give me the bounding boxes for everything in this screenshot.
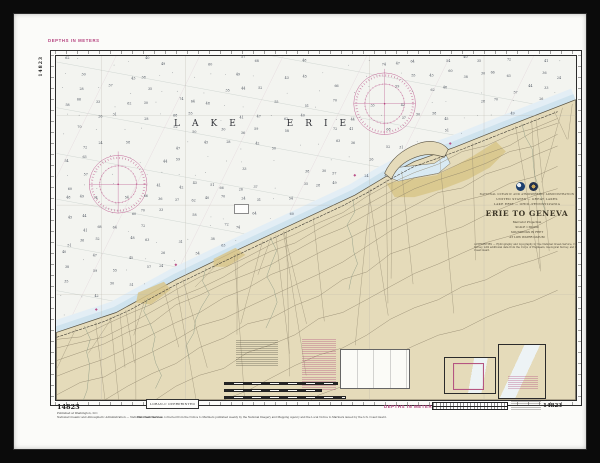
scale-bar bbox=[224, 382, 338, 386]
svg-text:26: 26 bbox=[539, 97, 543, 101]
soundings-line: SOUNDINGS IN FEET bbox=[474, 230, 577, 234]
svg-text:60: 60 bbox=[208, 62, 212, 66]
svg-text:49: 49 bbox=[332, 181, 336, 185]
svg-text:41: 41 bbox=[83, 228, 87, 232]
svg-text:35: 35 bbox=[64, 279, 68, 283]
svg-text:36: 36 bbox=[80, 238, 84, 242]
svg-text:58: 58 bbox=[126, 141, 130, 145]
svg-text:50: 50 bbox=[416, 113, 420, 117]
agency-logos bbox=[474, 182, 577, 191]
svg-text:59: 59 bbox=[93, 269, 97, 273]
meters-feet-conversion-scale bbox=[432, 402, 508, 410]
svg-text:38: 38 bbox=[464, 75, 468, 79]
border-ticks-right bbox=[578, 55, 581, 401]
svg-text:63: 63 bbox=[145, 238, 149, 242]
svg-text:49: 49 bbox=[236, 73, 240, 77]
svg-text:62: 62 bbox=[431, 88, 435, 92]
svg-text:58: 58 bbox=[432, 111, 436, 115]
chart-number-bottom-left: 14823 bbox=[57, 403, 80, 411]
svg-text:50: 50 bbox=[272, 146, 276, 150]
svg-text:38: 38 bbox=[211, 237, 215, 241]
svg-text:57: 57 bbox=[241, 56, 245, 59]
svg-text:44: 44 bbox=[82, 214, 86, 218]
svg-text:45: 45 bbox=[444, 117, 448, 121]
svg-text:30: 30 bbox=[82, 72, 86, 76]
svg-text:66: 66 bbox=[491, 71, 495, 75]
svg-text:43: 43 bbox=[285, 76, 289, 80]
authorities-note: AUTHORITIES — Hydrography and topography… bbox=[474, 243, 577, 252]
svg-text:33: 33 bbox=[242, 167, 246, 171]
svg-text:24: 24 bbox=[98, 141, 102, 145]
svg-text:44: 44 bbox=[163, 160, 167, 164]
svg-text:51: 51 bbox=[210, 183, 214, 187]
svg-text:33: 33 bbox=[544, 86, 548, 90]
svg-text:68: 68 bbox=[255, 59, 259, 63]
svg-text:57: 57 bbox=[332, 171, 336, 175]
svg-text:26: 26 bbox=[161, 251, 165, 255]
noaa-logo-icon bbox=[516, 182, 525, 191]
svg-text:37: 37 bbox=[402, 116, 406, 120]
svg-text:30: 30 bbox=[322, 169, 326, 173]
svg-text:30: 30 bbox=[481, 71, 485, 75]
svg-text:72: 72 bbox=[507, 57, 511, 61]
svg-text:72: 72 bbox=[141, 224, 145, 228]
svg-text:68: 68 bbox=[173, 114, 177, 118]
svg-text:44: 44 bbox=[241, 87, 245, 91]
inset-note-block bbox=[508, 376, 538, 389]
svg-text:35: 35 bbox=[304, 182, 308, 186]
svg-text:70: 70 bbox=[494, 98, 498, 102]
svg-text:48: 48 bbox=[130, 236, 134, 240]
svg-text:47: 47 bbox=[93, 254, 97, 258]
svg-text:26: 26 bbox=[239, 188, 243, 192]
chart-body: 6258546048455140383530286670726357494441… bbox=[55, 55, 577, 401]
svg-text:40: 40 bbox=[463, 56, 467, 59]
svg-text:63: 63 bbox=[82, 155, 86, 159]
svg-text:42: 42 bbox=[401, 103, 405, 107]
svg-text:52: 52 bbox=[258, 86, 262, 90]
svg-text:40: 40 bbox=[205, 196, 209, 200]
svg-text:28: 28 bbox=[79, 87, 83, 91]
svg-text:24: 24 bbox=[159, 264, 163, 268]
svg-text:43: 43 bbox=[131, 76, 135, 80]
svg-text:54: 54 bbox=[196, 251, 200, 255]
conversion-scale-caption bbox=[511, 401, 541, 410]
svg-text:74: 74 bbox=[94, 196, 98, 200]
svg-text:63: 63 bbox=[507, 74, 511, 78]
svg-text:48: 48 bbox=[206, 102, 210, 106]
svg-text:54: 54 bbox=[125, 196, 129, 200]
svg-text:36: 36 bbox=[542, 71, 546, 75]
svg-text:66: 66 bbox=[144, 194, 148, 198]
svg-text:64: 64 bbox=[113, 225, 117, 229]
svg-text:68: 68 bbox=[386, 128, 390, 132]
title-block: NATIONAL OCEANIC AND ATMOSPHERIC ADMINIS… bbox=[474, 182, 577, 252]
svg-text:70: 70 bbox=[141, 209, 145, 213]
svg-text:54: 54 bbox=[446, 59, 450, 63]
svg-text:58: 58 bbox=[285, 129, 289, 133]
svg-text:58: 58 bbox=[192, 213, 196, 217]
svg-text:36: 36 bbox=[158, 197, 162, 201]
svg-text:45: 45 bbox=[68, 216, 72, 220]
svg-text:50: 50 bbox=[192, 130, 196, 134]
svg-text:51: 51 bbox=[129, 283, 133, 287]
svg-text:40: 40 bbox=[301, 114, 305, 118]
svg-text:55: 55 bbox=[274, 100, 278, 104]
border-ticks-top bbox=[55, 51, 577, 54]
lake-name-label: LAKE ERIE bbox=[174, 119, 358, 129]
svg-text:57: 57 bbox=[513, 91, 517, 95]
svg-text:42: 42 bbox=[179, 186, 183, 190]
svg-text:49: 49 bbox=[80, 194, 84, 198]
framed-chart-print: DEPTHS IN METERS 14823 6258 bbox=[0, 0, 600, 463]
svg-text:40: 40 bbox=[62, 250, 66, 254]
svg-text:36: 36 bbox=[351, 141, 355, 145]
svg-text:70: 70 bbox=[221, 194, 225, 198]
svg-text:55: 55 bbox=[188, 111, 192, 115]
svg-text:26: 26 bbox=[369, 157, 373, 161]
svg-text:55: 55 bbox=[411, 73, 415, 77]
correction-note: This chart has been corrected from the N… bbox=[137, 416, 463, 419]
chart-title: ERIE TO GENEVA bbox=[474, 209, 577, 218]
projection-line: Mercator Projection bbox=[474, 220, 577, 224]
svg-text:60: 60 bbox=[448, 69, 452, 73]
svg-text:37: 37 bbox=[109, 84, 113, 88]
svg-text:74: 74 bbox=[236, 226, 240, 230]
svg-text:74: 74 bbox=[382, 63, 386, 67]
svg-text:31: 31 bbox=[113, 113, 117, 117]
svg-text:43: 43 bbox=[193, 181, 197, 185]
svg-text:36: 36 bbox=[241, 131, 245, 135]
loran-overprint-box: LORAN-C OVERPRINTED bbox=[146, 399, 199, 409]
svg-text:60: 60 bbox=[68, 187, 72, 191]
left-margin-chart-number: 14823 bbox=[39, 56, 44, 77]
svg-text:30: 30 bbox=[144, 101, 148, 105]
svg-text:60: 60 bbox=[290, 212, 294, 216]
svg-text:57: 57 bbox=[147, 265, 151, 269]
svg-text:42: 42 bbox=[94, 294, 98, 298]
svg-text:28: 28 bbox=[144, 117, 148, 121]
svg-text:51: 51 bbox=[445, 128, 449, 132]
svg-text:74: 74 bbox=[179, 97, 183, 101]
svg-text:48: 48 bbox=[66, 195, 70, 199]
svg-text:31: 31 bbox=[179, 240, 183, 244]
svg-text:47: 47 bbox=[176, 146, 180, 150]
svg-text:35: 35 bbox=[148, 87, 152, 91]
svg-text:24: 24 bbox=[364, 174, 368, 178]
svg-text:41: 41 bbox=[544, 59, 548, 63]
svg-text:66: 66 bbox=[220, 186, 224, 190]
caution-note-block bbox=[236, 340, 278, 366]
inset-magenta-limit-box bbox=[454, 364, 483, 389]
svg-text:72: 72 bbox=[83, 145, 87, 149]
svg-text:33: 33 bbox=[159, 208, 163, 212]
svg-text:40: 40 bbox=[145, 56, 149, 60]
svg-text:62: 62 bbox=[65, 56, 69, 60]
svg-text:72: 72 bbox=[225, 222, 229, 226]
svg-text:62: 62 bbox=[127, 102, 131, 106]
svg-text:37: 37 bbox=[175, 198, 179, 202]
svg-text:26: 26 bbox=[98, 115, 102, 119]
scale-bar bbox=[224, 396, 346, 400]
svg-text:51: 51 bbox=[305, 104, 309, 108]
svg-text:58: 58 bbox=[65, 103, 69, 107]
svg-text:28: 28 bbox=[481, 100, 485, 104]
svg-text:33: 33 bbox=[96, 100, 100, 104]
svg-text:45: 45 bbox=[204, 141, 208, 145]
svg-text:59: 59 bbox=[176, 157, 180, 161]
svg-text:54: 54 bbox=[64, 159, 68, 163]
svg-text:43: 43 bbox=[429, 73, 433, 77]
harbor-inset-left bbox=[444, 357, 496, 394]
svg-text:42: 42 bbox=[255, 141, 259, 145]
svg-text:57: 57 bbox=[84, 173, 88, 177]
svg-text:35: 35 bbox=[477, 59, 481, 63]
svg-text:60: 60 bbox=[132, 212, 136, 216]
graphic-scale-bars bbox=[224, 378, 344, 399]
svg-text:47: 47 bbox=[396, 62, 400, 66]
svg-text:31: 31 bbox=[257, 198, 261, 202]
harbor-inset-right bbox=[498, 344, 546, 399]
svg-text:52: 52 bbox=[95, 237, 99, 241]
top-left-depth-note: DEPTHS IN METERS bbox=[48, 38, 100, 43]
svg-text:33: 33 bbox=[370, 104, 374, 108]
svg-text:68: 68 bbox=[97, 225, 101, 229]
svg-text:48: 48 bbox=[443, 85, 447, 89]
svg-text:35: 35 bbox=[226, 89, 230, 93]
svg-text:52: 52 bbox=[386, 145, 390, 149]
border-ticks-left bbox=[51, 55, 54, 401]
source-diagram-box bbox=[340, 349, 410, 389]
svg-text:55: 55 bbox=[113, 269, 117, 273]
svg-text:54: 54 bbox=[289, 196, 293, 200]
datum-line: AT LOW WATER DATUM bbox=[474, 235, 577, 239]
svg-text:66: 66 bbox=[334, 84, 338, 88]
chart-note-box-on-water bbox=[234, 204, 249, 214]
bottom-right-depth-note: DEPTHS IN METERS bbox=[384, 404, 436, 409]
svg-text:38: 38 bbox=[305, 170, 309, 174]
scale-line: SCALE 1:80,000 bbox=[474, 225, 577, 229]
svg-text:63: 63 bbox=[221, 244, 225, 248]
svg-text:70: 70 bbox=[333, 99, 337, 103]
svg-text:49: 49 bbox=[161, 62, 165, 66]
svg-text:24: 24 bbox=[241, 197, 245, 201]
commerce-seal-icon bbox=[529, 182, 538, 191]
svg-text:64: 64 bbox=[191, 100, 195, 104]
svg-text:48: 48 bbox=[302, 58, 306, 62]
agency-line: NATIONAL OCEANIC AND ATMOSPHERIC ADMINIS… bbox=[474, 193, 577, 196]
svg-text:63: 63 bbox=[336, 139, 340, 143]
svg-text:64: 64 bbox=[410, 59, 414, 63]
region-line-2: LAKE ERIE — OHIO–PENNSYLVANIA bbox=[474, 202, 577, 206]
svg-text:70: 70 bbox=[77, 125, 81, 129]
svg-text:45: 45 bbox=[303, 75, 307, 79]
svg-text:49: 49 bbox=[510, 112, 514, 116]
svg-text:41: 41 bbox=[157, 184, 161, 188]
svg-text:66: 66 bbox=[77, 97, 81, 101]
svg-text:44: 44 bbox=[528, 84, 532, 88]
svg-text:64: 64 bbox=[252, 211, 256, 215]
svg-text:62: 62 bbox=[192, 198, 196, 202]
svg-text:31: 31 bbox=[399, 146, 403, 150]
svg-text:38: 38 bbox=[65, 265, 69, 269]
region-line-1: UNITED STATES — GREAT LAKES bbox=[474, 197, 577, 201]
svg-text:38: 38 bbox=[142, 76, 146, 80]
svg-text:51: 51 bbox=[67, 244, 71, 248]
svg-text:45: 45 bbox=[129, 256, 133, 260]
svg-text:24: 24 bbox=[557, 76, 561, 80]
svg-text:47: 47 bbox=[257, 114, 261, 118]
svg-text:50: 50 bbox=[110, 281, 114, 285]
svg-text:28: 28 bbox=[316, 184, 320, 188]
svg-text:37: 37 bbox=[253, 185, 257, 189]
scale-bar bbox=[224, 389, 322, 393]
svg-text:28: 28 bbox=[226, 140, 230, 144]
svg-text:59: 59 bbox=[395, 85, 399, 89]
chart-number-bottom-right: 14823 bbox=[543, 403, 562, 409]
